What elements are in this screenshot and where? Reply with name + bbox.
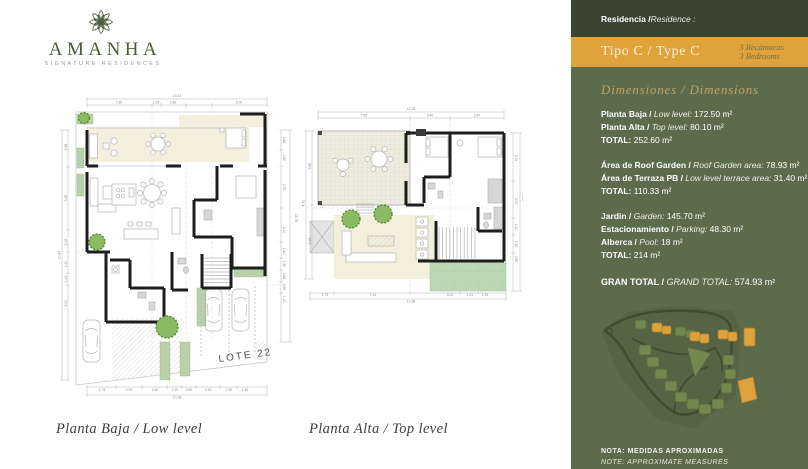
svg-text:4.15: 4.15: [514, 155, 518, 162]
svg-text:4.70: 4.70: [302, 200, 306, 207]
dimensions-list: Planta Baja / Low level: 172.50 m² Plant…: [601, 108, 808, 289]
svg-text:0.85: 0.85: [282, 273, 286, 280]
svg-text:0.85: 0.85: [514, 256, 518, 263]
svg-text:1.75: 1.75: [99, 388, 106, 392]
svg-text:12.38: 12.38: [407, 107, 416, 111]
chimney: [416, 129, 426, 136]
svg-text:1.80: 1.80: [152, 388, 159, 392]
svg-text:3.75: 3.75: [282, 184, 286, 191]
dim-row: Planta Baja / Low level: 172.50 m²: [601, 108, 808, 121]
svg-text:10.87: 10.87: [58, 251, 62, 260]
note-english: NOTE: APPROXIMATE MEASURES: [601, 457, 728, 468]
dim-total: TOTAL: 110.33 m²: [601, 185, 808, 198]
svg-text:3.40: 3.40: [427, 114, 434, 118]
caption-planta-baja: Planta Baja / Low level: [56, 421, 202, 438]
svg-text:5.15: 5.15: [308, 238, 312, 245]
planta-baja-floorplan: 13.327.301.002.806.00 10.872.985.952.191…: [54, 90, 304, 405]
dim-total: TOTAL: 214 m²: [601, 249, 808, 262]
dim-row: Área de Roof Garden / Roof Garden area: …: [601, 159, 808, 172]
dim-row: Planta Alta / Top level: 80.10 m²: [601, 121, 808, 134]
brochure-page: AMANHA SIGNATURE RESIDENCES: [0, 0, 808, 469]
svg-text:1.00: 1.00: [226, 388, 233, 392]
side-terrace: [310, 221, 334, 253]
svg-text:0.80: 0.80: [282, 155, 286, 162]
svg-text:13.32: 13.32: [173, 94, 182, 98]
svg-text:1.15: 1.15: [282, 296, 286, 303]
svg-text:0.85: 0.85: [282, 284, 286, 291]
svg-text:8.40: 8.40: [521, 195, 523, 202]
svg-text:1.14: 1.14: [64, 276, 68, 283]
dim-row: Estacionamiento / Parking: 48.30 m²: [601, 223, 808, 236]
svg-text:1.00: 1.00: [153, 101, 160, 105]
grand-total: GRAN TOTAL / GRAND TOTAL: 574.93 m²: [601, 276, 808, 289]
svg-text:2.51: 2.51: [64, 300, 68, 307]
brand-logo: AMANHA SIGNATURE RESIDENCES: [0, 0, 220, 90]
svg-text:1.40: 1.40: [282, 248, 286, 255]
svg-text:1.20: 1.20: [172, 388, 179, 392]
svg-text:1.24: 1.24: [467, 293, 474, 297]
bedroom-furniture: [426, 137, 503, 229]
planta-alta-floorplan: 12.387.503.403.40 4.705.855.15 8.404.153…: [298, 103, 523, 303]
main-stairs: [439, 227, 475, 259]
spec-sidebar: Residencia / Residence : Tipo C / Type C…: [571, 0, 808, 469]
svg-text:12.38: 12.38: [407, 300, 416, 304]
svg-text:1.39: 1.39: [482, 293, 489, 297]
svg-text:3.10: 3.10: [282, 227, 286, 234]
svg-text:5.95: 5.95: [64, 195, 68, 202]
svg-text:3.00: 3.00: [514, 198, 518, 205]
dim-row: Alberca / Pool: 18 m²: [601, 236, 808, 249]
svg-text:3.20: 3.20: [447, 293, 454, 297]
residence-label-es: Residencia /: [601, 14, 651, 24]
brand-tagline: SIGNATURE RESIDENCES: [31, 61, 173, 67]
bedrooms-label: 3 Recámaras 3 Bedrooms: [739, 43, 784, 62]
dim-group-terraces: Área de Roof Garden / Roof Garden area: …: [601, 159, 808, 198]
svg-text:2.98: 2.98: [64, 144, 68, 151]
dim-total: TOTAL: 252.60 m²: [601, 134, 808, 147]
roof-garden: [318, 131, 410, 205]
svg-text:1.30: 1.30: [514, 241, 518, 248]
dimensions-heading: Dimensiones / Dimensions: [601, 82, 808, 98]
dim-row: Jardin / Garden: 145.70 m²: [601, 210, 808, 223]
svg-text:1.20: 1.20: [514, 224, 518, 231]
caption-planta-alta: Planta Alta / Top level: [309, 421, 448, 438]
svg-text:1.20: 1.20: [64, 261, 68, 268]
svg-text:6.00: 6.00: [236, 101, 243, 105]
svg-text:1.75: 1.75: [322, 293, 329, 297]
svg-text:2.19: 2.19: [64, 239, 68, 246]
amanha-rosette-icon: [85, 6, 117, 38]
svg-text:5.85: 5.85: [308, 163, 312, 170]
svg-text:7.50: 7.50: [361, 114, 368, 118]
type-band: Tipo C / Type C 3 Recámaras 3 Bedrooms: [571, 37, 808, 67]
svg-text:1.40: 1.40: [242, 388, 249, 392]
svg-text:7.44: 7.44: [370, 293, 377, 297]
residence-label-en: Residence :: [651, 14, 696, 24]
svg-text:1.50: 1.50: [282, 261, 286, 268]
dim-row: Área de Terraza PB / Low level terrace a…: [601, 172, 808, 185]
type-title: Tipo C / Type C: [601, 44, 700, 60]
measure-notes: NOTA: MEDIDAS APROXIMADAS NOTE: APPROXIM…: [601, 446, 728, 468]
dim-group-levels: Planta Baja / Low level: 172.50 m² Plant…: [601, 108, 808, 147]
svg-text:7.30: 7.30: [116, 101, 123, 105]
svg-text:10.78: 10.78: [173, 396, 182, 400]
svg-text:2.80: 2.80: [170, 101, 177, 105]
svg-text:2.15: 2.15: [205, 388, 212, 392]
dim-group-exterior: Jardin / Garden: 145.70 m² Estacionamien…: [601, 210, 808, 262]
brand-name: AMANHA: [31, 39, 175, 61]
residence-strip: Residencia / Residence :: [571, 0, 808, 37]
site-map: [595, 299, 761, 435]
svg-text:2.20: 2.20: [126, 388, 133, 392]
svg-text:3.40: 3.40: [474, 114, 481, 118]
svg-text:2.86: 2.86: [282, 137, 286, 144]
note-spanish: NOTA: MEDIDAS APROXIMADAS: [601, 446, 728, 457]
svg-text:0.80: 0.80: [186, 388, 193, 392]
green-terrace: [430, 261, 506, 291]
